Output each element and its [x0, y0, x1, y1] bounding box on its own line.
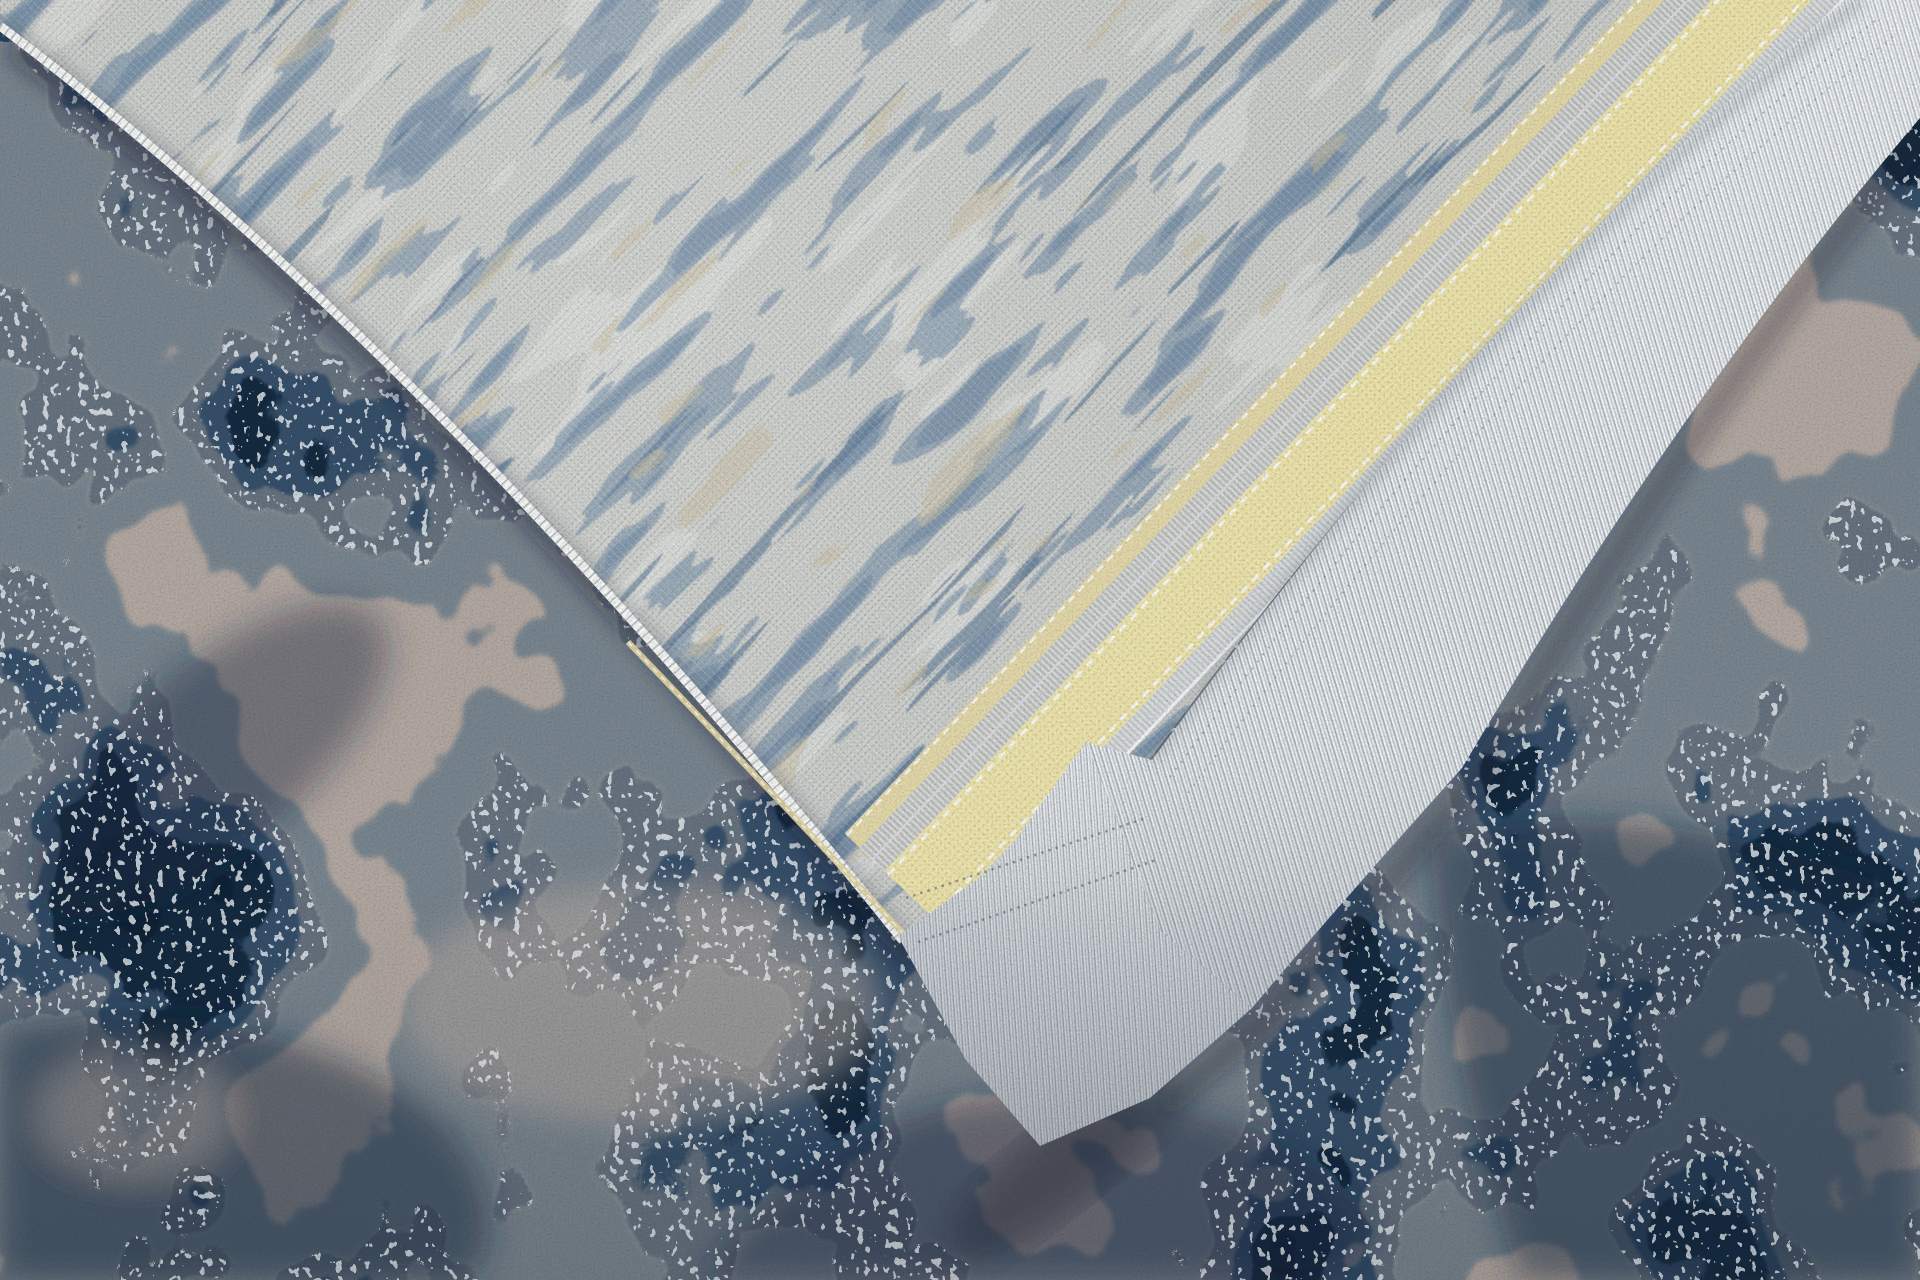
rug-photo-canvas — [0, 0, 1920, 1280]
rug-photo — [0, 0, 1920, 1280]
photo-vignette — [0, 0, 1920, 1280]
